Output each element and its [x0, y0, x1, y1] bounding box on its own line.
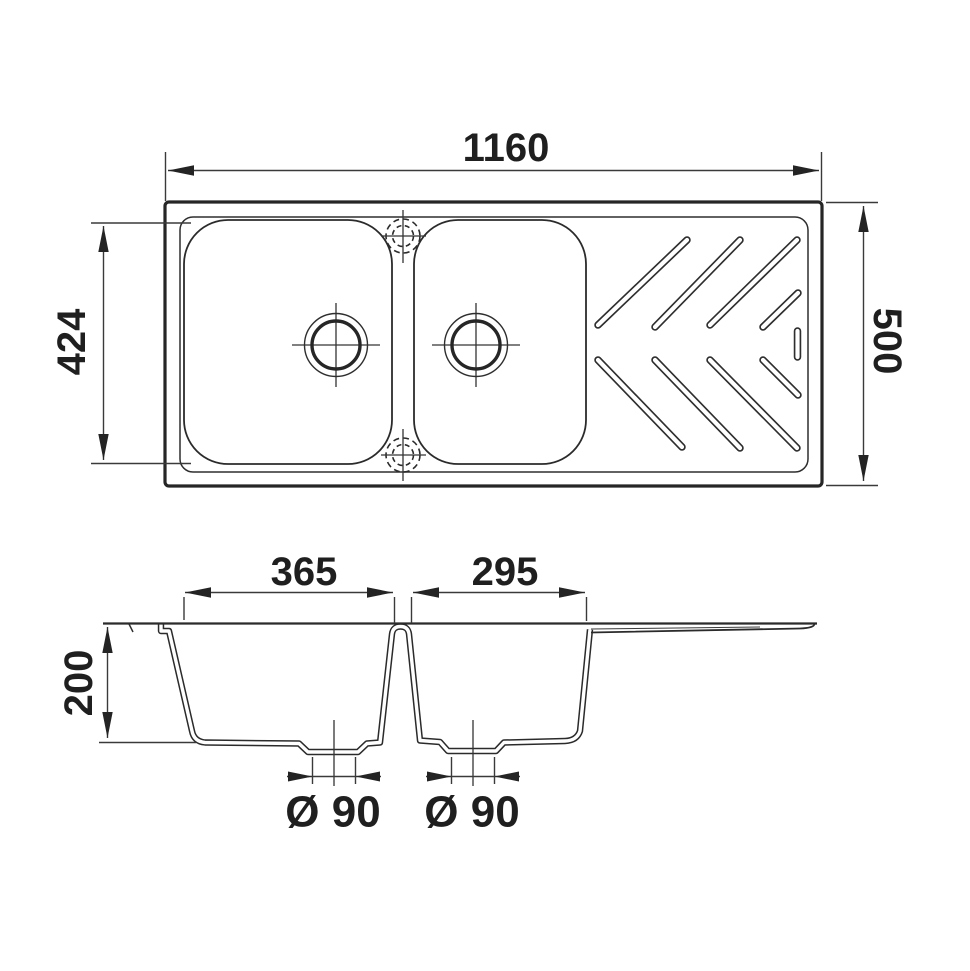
dim-295-extension-lines	[412, 597, 587, 623]
dim-500-label: 500	[865, 308, 909, 375]
sink-technical-drawing-page: 1160 500 424 365 295	[0, 0, 970, 971]
sink-top-view	[165, 202, 822, 486]
drainer-grooves	[598, 240, 798, 448]
left-bowl-drain	[292, 303, 380, 387]
section-bowls-profile-inner	[161, 624, 590, 752]
dim-d90-left-label: Ø 90	[285, 788, 380, 837]
dim-424-label: 424	[50, 308, 94, 375]
dim-bowl2-width: 295	[412, 550, 587, 623]
tap-hole-bottom	[381, 429, 426, 481]
dim-drain1-diameter: Ø 90	[285, 720, 381, 837]
section-rim-left-lip	[129, 624, 133, 632]
tap-hole-top-crosshair	[381, 210, 426, 263]
sink-section-view	[103, 624, 817, 753]
dim-bowl-length: 424	[50, 223, 191, 464]
left-drain-crosshair	[292, 303, 380, 387]
tap-hole-bottom-crosshair	[381, 429, 426, 481]
right-bowl-drain	[432, 303, 520, 387]
drainer-grooves-fill	[598, 240, 798, 448]
section-bowls-profile	[161, 624, 590, 752]
dim-bowl1-width: 365	[184, 550, 395, 623]
dim-d90-right-label: Ø 90	[424, 788, 519, 837]
dim-365-label: 365	[271, 550, 338, 594]
dim-365-extension-lines	[184, 597, 395, 623]
dim-295-label: 295	[472, 550, 539, 594]
dim-overall-width: 1160	[166, 126, 822, 201]
right-drain-crosshair	[432, 303, 520, 387]
dim-drain2-diameter: Ø 90	[424, 720, 520, 837]
tap-hole-top	[381, 210, 426, 263]
dim-200-label: 200	[57, 650, 101, 717]
dim-overall-depth: 500	[826, 203, 909, 486]
section-drainer-wedge-inner-line	[591, 627, 760, 629]
dim-1160-label: 1160	[463, 126, 550, 170]
sink-outer-rim	[165, 202, 822, 486]
sink-technical-drawing: 1160 500 424 365 295	[0, 0, 970, 971]
dim-424-extension-lines	[91, 223, 191, 464]
